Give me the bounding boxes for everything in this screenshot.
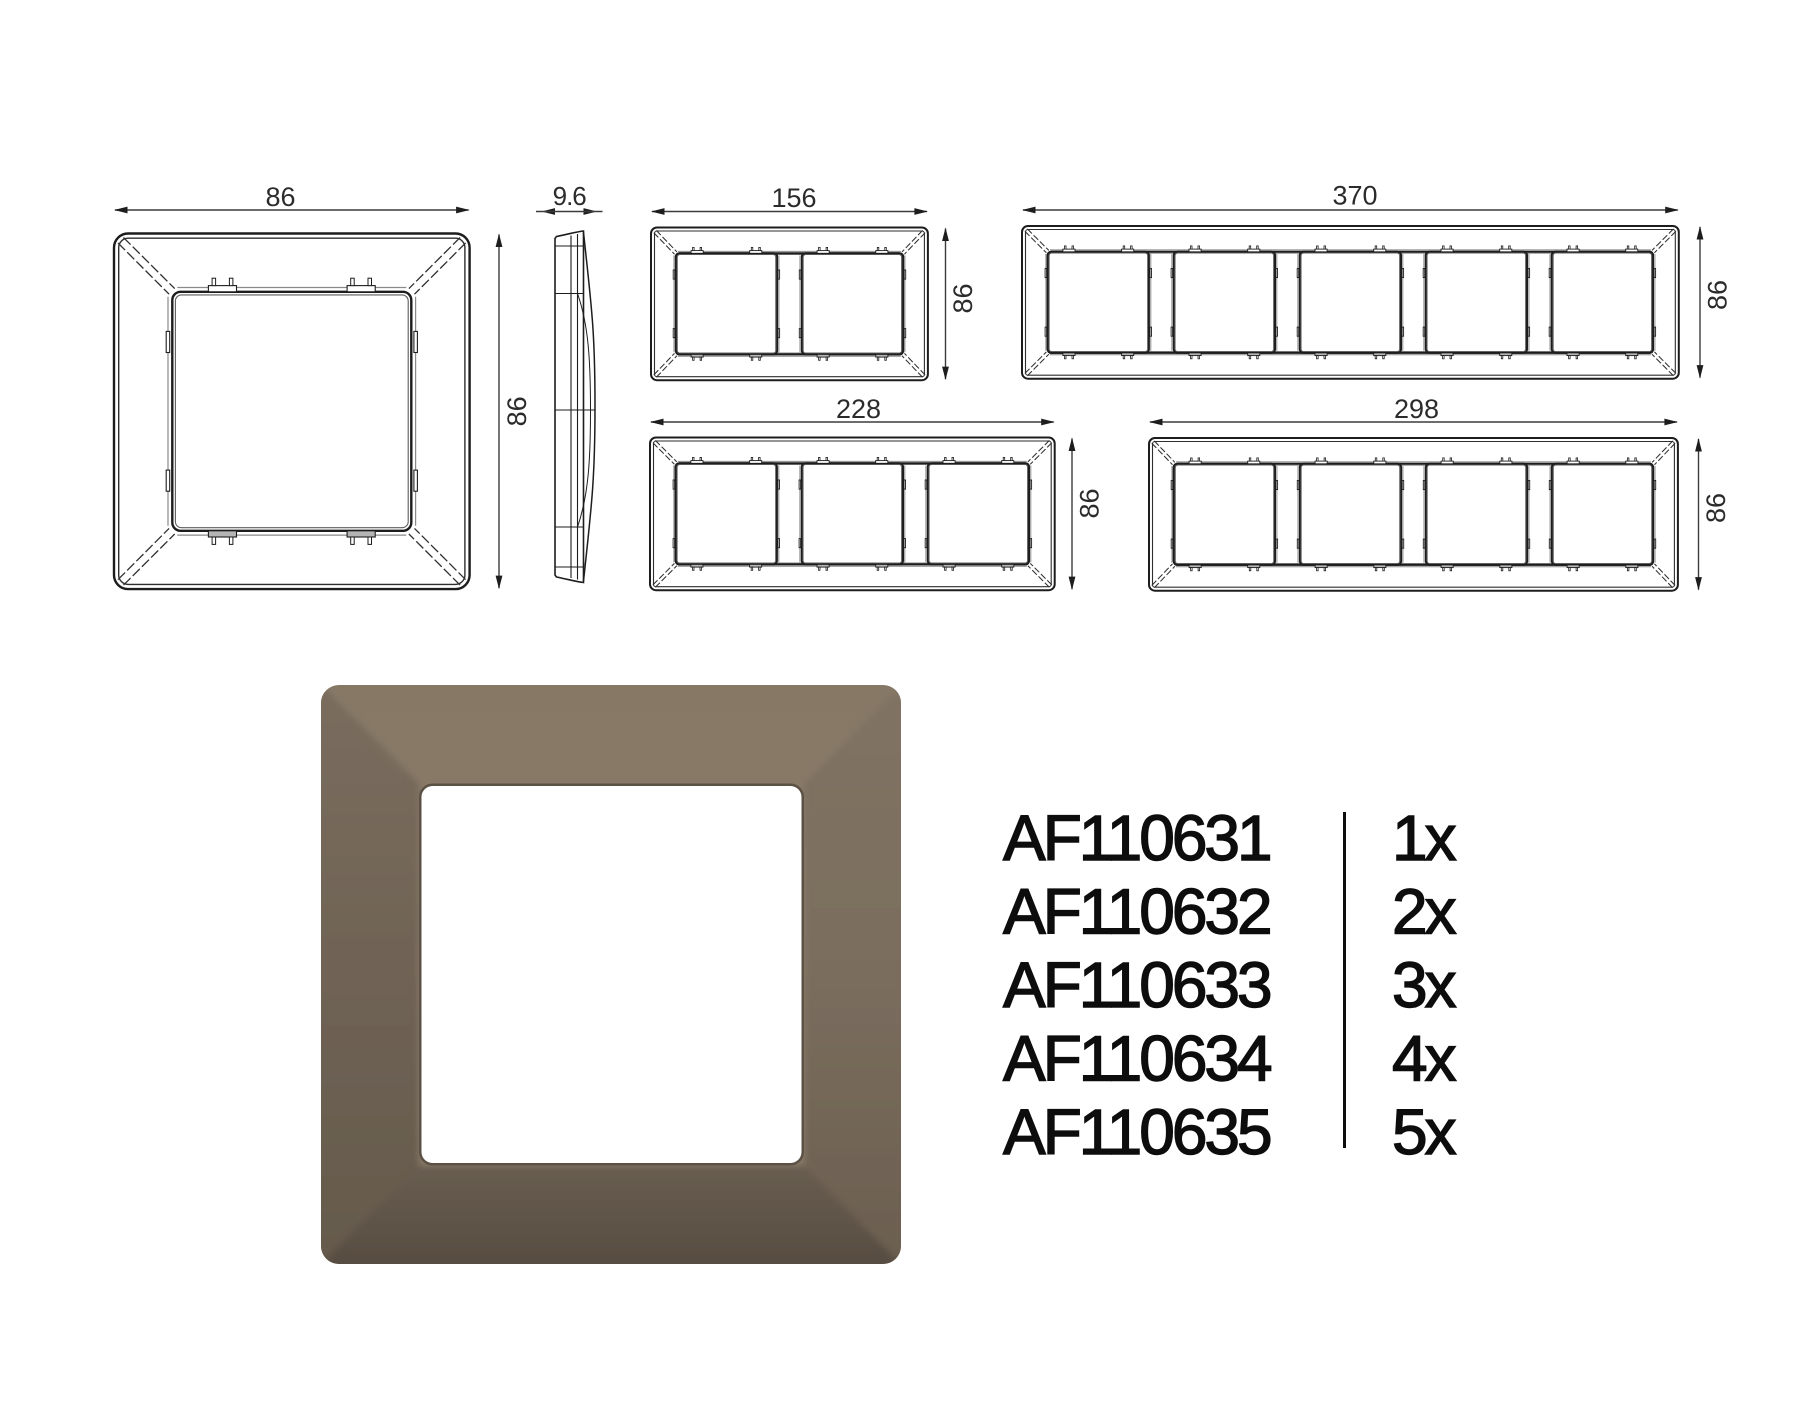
svg-text:4x: 4x: [1392, 1023, 1457, 1095]
svg-text:86: 86: [1075, 488, 1105, 518]
svg-text:298: 298: [1394, 394, 1439, 424]
svg-text:9.6: 9.6: [553, 181, 587, 211]
svg-text:86: 86: [265, 182, 295, 212]
svg-text:156: 156: [771, 183, 816, 213]
svg-text:AF110631: AF110631: [1003, 802, 1270, 874]
svg-text:86: 86: [1701, 493, 1731, 523]
svg-text:AF110635: AF110635: [1003, 1096, 1270, 1168]
svg-text:86: 86: [948, 283, 978, 313]
svg-text:AF110633: AF110633: [1003, 949, 1270, 1021]
svg-text:AF110632: AF110632: [1003, 876, 1270, 948]
svg-text:370: 370: [1332, 181, 1377, 211]
svg-text:1x: 1x: [1392, 802, 1457, 874]
svg-text:228: 228: [836, 394, 881, 424]
svg-text:2x: 2x: [1392, 876, 1457, 948]
svg-text:5x: 5x: [1392, 1096, 1457, 1168]
svg-text:86: 86: [502, 396, 532, 426]
svg-text:86: 86: [1703, 280, 1733, 310]
svg-text:AF110634: AF110634: [1003, 1023, 1271, 1095]
svg-text:3x: 3x: [1392, 949, 1457, 1021]
